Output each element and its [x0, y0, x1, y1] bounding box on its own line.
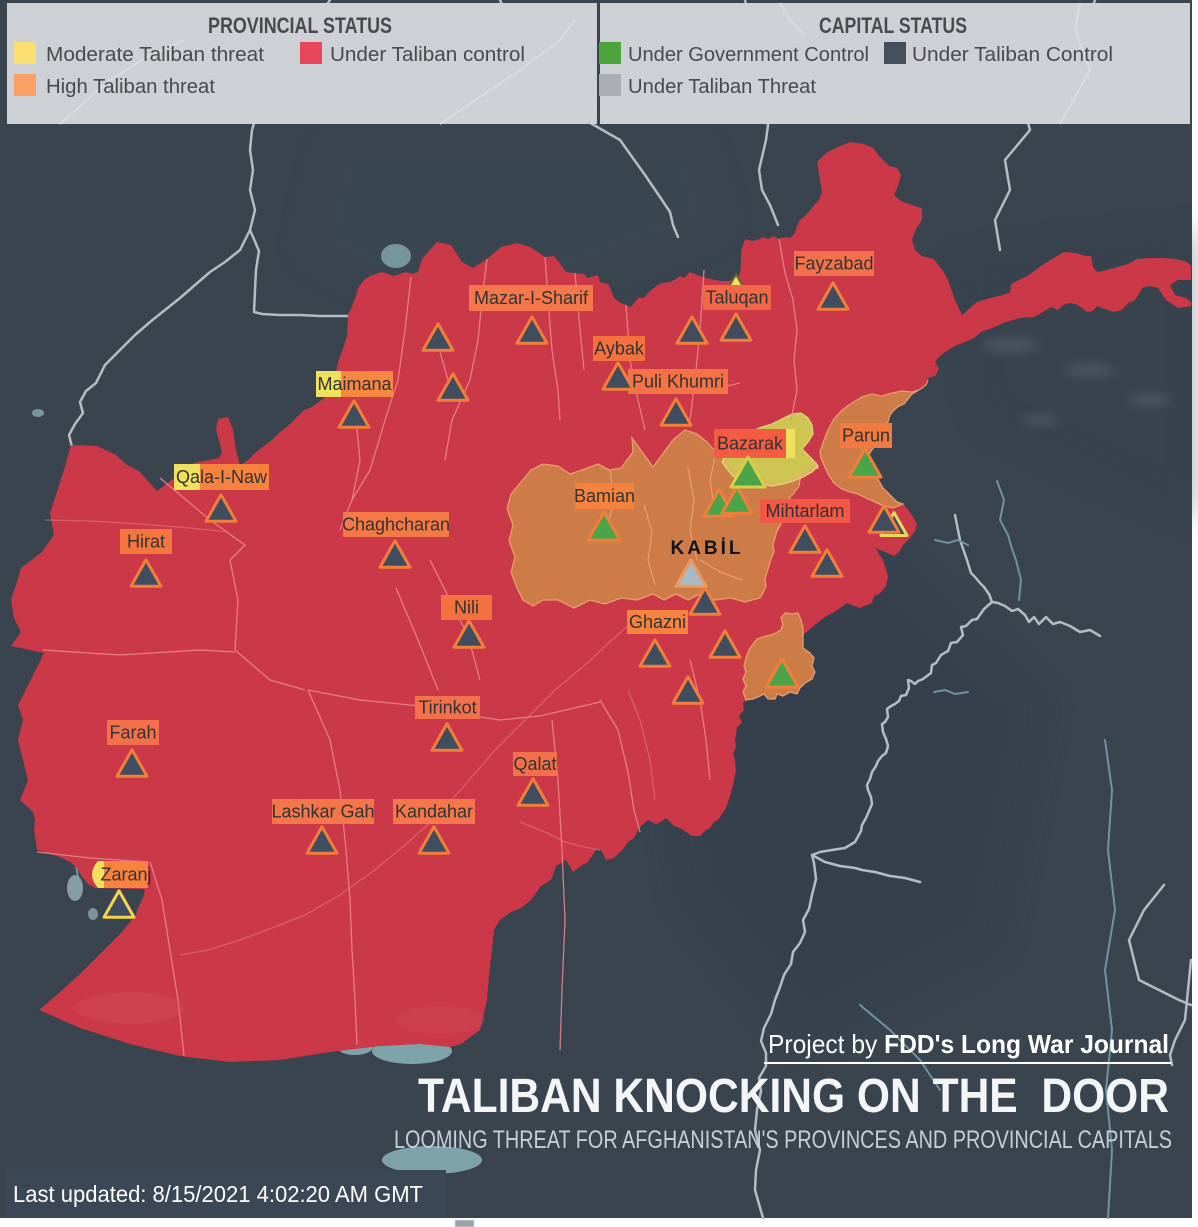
svg-text:Lashkar Gah: Lashkar Gah [271, 802, 374, 822]
svg-text:Hirat: Hirat [127, 532, 165, 552]
svg-text:Under Taliban Threat: Under Taliban Threat [628, 76, 816, 98]
svg-text:Bazarak: Bazarak [717, 434, 784, 454]
svg-text:Zaranj: Zaranj [100, 865, 151, 885]
svg-text:Qalat: Qalat [513, 754, 556, 774]
svg-text:High Taliban threat: High Taliban threat [46, 76, 215, 98]
svg-text:Aybak: Aybak [594, 339, 645, 359]
svg-text:Mazar-I-Sharif: Mazar-I-Sharif [474, 288, 589, 308]
svg-text:PROVINCIAL STATUS: PROVINCIAL STATUS [208, 13, 392, 38]
svg-text:LOOMING THREAT FOR AFGHANISTAN: LOOMING THREAT FOR AFGHANISTAN'S PROVINC… [394, 1126, 1172, 1154]
svg-text:Parun: Parun [842, 426, 890, 446]
svg-text:Qala-I-Naw: Qala-I-Naw [176, 467, 268, 487]
svg-text:Under Taliban control: Under Taliban control [330, 44, 525, 66]
svg-text:Bamian: Bamian [574, 486, 635, 506]
svg-text:Moderate Taliban threat: Moderate Taliban threat [46, 44, 264, 66]
svg-text:Kandahar: Kandahar [395, 802, 473, 822]
svg-text:Project by FDD's Long War Jour: Project by FDD's Long War Journal [768, 1029, 1169, 1059]
svg-text:Chaghcharan: Chaghcharan [342, 515, 450, 535]
svg-text:Fayzabad: Fayzabad [794, 254, 873, 274]
svg-text:Last updated: 8/15/2021 4:02:2: Last updated: 8/15/2021 4:02:20 AM GMT [13, 1181, 423, 1207]
svg-text:Nili: Nili [454, 598, 479, 618]
svg-text:KABİL: KABİL [670, 538, 743, 559]
svg-text:Under Taliban Control: Under Taliban Control [912, 44, 1113, 66]
svg-text:Under Government Control: Under Government Control [628, 44, 869, 66]
svg-text:Ghazni: Ghazni [629, 612, 686, 632]
svg-text:Mihtarlam: Mihtarlam [765, 501, 844, 521]
svg-text:Tirinkot: Tirinkot [418, 698, 476, 718]
svg-text:Taluqan: Taluqan [705, 288, 768, 308]
svg-text:Farah: Farah [109, 723, 156, 743]
svg-text:Maimana: Maimana [317, 374, 392, 394]
svg-text:TALIBAN KNOCKING ON THE DOOR: TALIBAN KNOCKING ON THE DOOR [418, 1070, 1169, 1123]
svg-text:CAPITAL STATUS: CAPITAL STATUS [819, 13, 967, 38]
svg-text:Puli Khumri: Puli Khumri [632, 372, 724, 392]
